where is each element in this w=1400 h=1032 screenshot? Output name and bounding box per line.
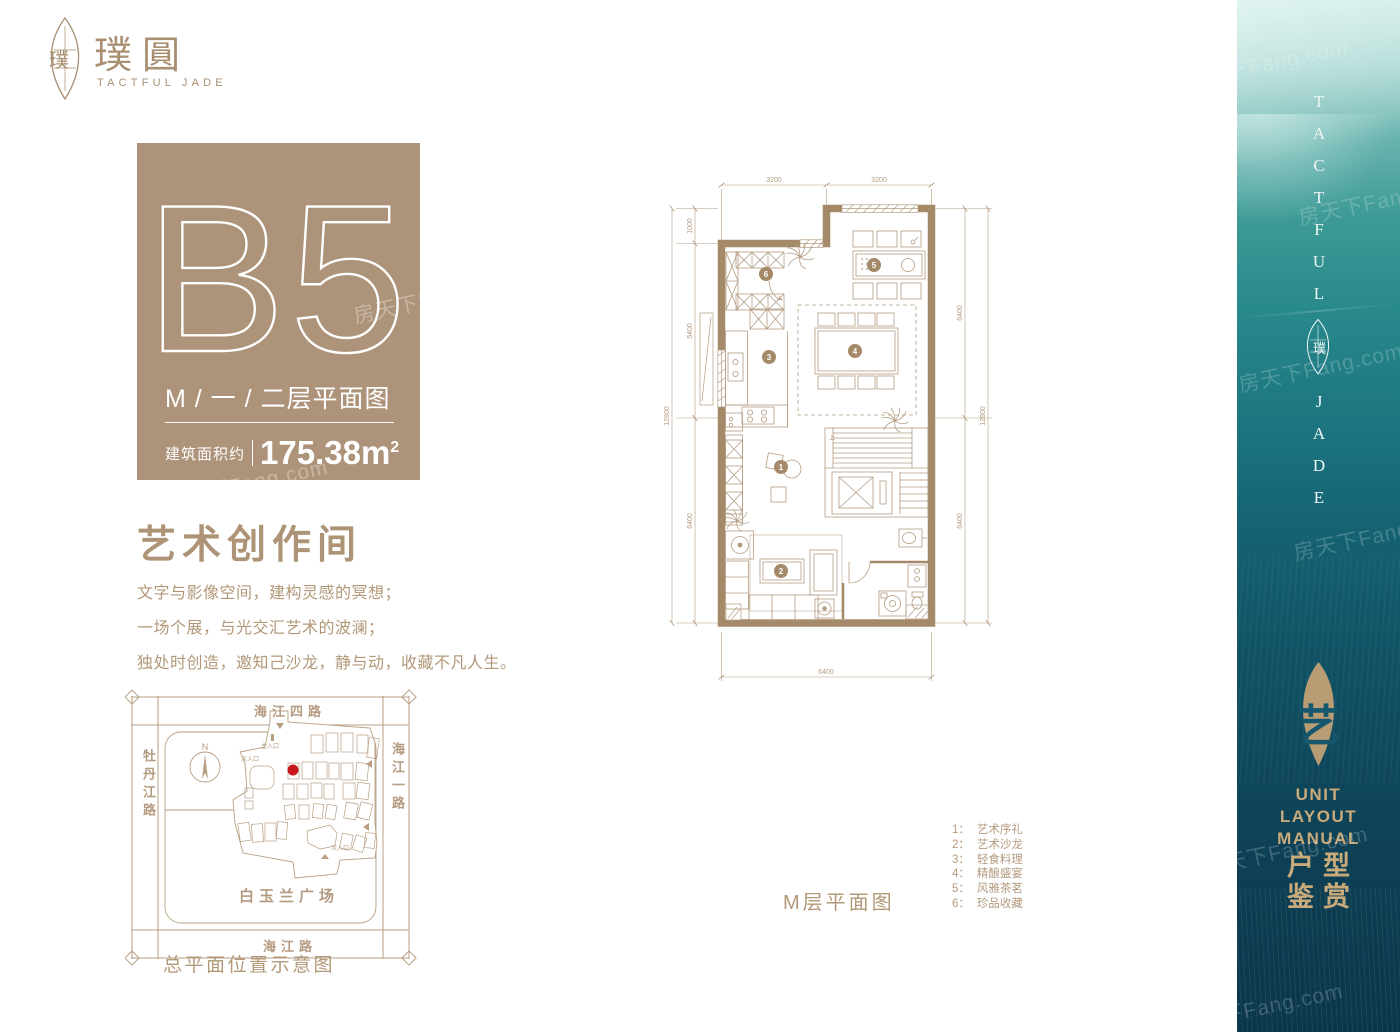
svg-text:6: 6 [764,270,769,279]
brochure-page: 璞 璞圓 TACTFUL JADE B5 M / 一 / 二层平面图 建筑面积约… [0,0,1400,1032]
vertical-brand-top: TACTFUL [1309,92,1329,316]
art-character: 艺 [1237,690,1400,754]
intro-line: 一场个展，与光交汇艺术的波澜； [137,611,517,646]
map-parcel-outline [233,711,377,878]
legend-item: 6：珍品收藏 [952,895,1023,910]
svg-text:3200: 3200 [871,177,887,184]
side-panel: TACTFUL 璞 JADE 艺 UNIT LAYOUT MANUAL 户型 鉴… [1237,0,1400,1032]
room-badge: 5 [867,258,881,272]
brand-leaf-glyph: 璞 [49,44,69,73]
area-row: 建筑面积约 175.38m2 [165,434,399,472]
svg-text:6400: 6400 [687,513,694,529]
legend-item: 1：艺术序礼 [952,822,1023,837]
entry-gallery [726,413,802,525]
dimension-labels: 3200 3200 1000 5400 6400 12800 6400 6400… [664,177,987,676]
legend-item: 2：艺术沙龙 [952,837,1023,852]
brand-name-en: TACTFUL JADE [97,77,227,89]
dining-area [798,305,916,415]
area-separator [252,440,253,466]
kitchen [726,309,788,427]
svg-text:12800: 12800 [980,406,987,426]
location-marker [288,765,299,776]
svg-text:2: 2 [779,567,784,576]
floor-plan-caption: M层平面图 [783,886,895,915]
entrance-label-secondary: 次入口 [241,754,259,763]
svg-text:5400: 5400 [687,323,694,339]
room-badge: 4 [848,344,862,358]
legend-item: 5：风雅茶茗 [952,881,1023,896]
stairs-elevator: 上 [825,428,928,517]
entrance-label-main: 主入口 [261,741,279,750]
watermark: 房天下Fang.com [1291,503,1400,567]
svg-text:6400: 6400 [818,669,834,676]
svg-text:6400: 6400 [957,305,964,321]
area-value: 175.38m2 [260,434,399,472]
room-legend: 1：艺术序礼 2：艺术沙龙 3：轻食料理 4：精酿盛宴 5：风雅茶茗 6：珍品收… [952,822,1023,910]
manual-title-cn: 户型 鉴赏 [1237,851,1400,913]
room-badges: 1 2 3 4 5 6 [759,258,881,578]
room-badge: 1 [774,460,788,474]
svg-text:1: 1 [779,463,784,472]
room-badge: 3 [762,350,776,364]
watermark: 房天下Fang.com [1237,31,1351,95]
road-label-top: 海江四路 [240,701,340,720]
unit-code: B5 [146,161,411,383]
plaza-label: 白玉兰广场 [229,885,349,906]
unit-code-graphic: B5 [137,151,420,383]
area-label: 建筑面积约 [165,443,245,464]
intro-line: 独处时创造，邀知己沙龙，静与动，收藏不凡人生。 [137,646,517,681]
intro-line: 文字与影像空间，建构灵感的冥想； [137,576,517,611]
svg-text:3200: 3200 [766,177,782,184]
card-divider [165,422,394,423]
site-map-caption: 总平面位置示意图 [163,950,335,977]
brand-name-cn: 璞圓 [94,24,190,79]
stair-up-label: 上 [829,434,835,442]
vertical-brand-bottom: JADE [1309,392,1329,520]
svg-text:12800: 12800 [664,406,671,426]
display-cabinets [726,252,784,310]
floor-label: M / 一 / 二层平面图 [165,379,391,415]
floor-plan-drawing: 上 [650,155,1010,710]
unit-card: B5 M / 一 / 二层平面图 建筑面积约 175.38m2 房天下Fang.… [137,143,420,480]
svg-text:1000: 1000 [687,218,694,234]
room-badge: 2 [774,564,788,578]
page-title: 艺术创作间 [137,514,362,570]
leaf-glyph: 璞 [1313,338,1326,357]
map-compass: N [190,742,220,782]
legend-item: 3：轻食料理 [952,851,1023,866]
svg-text:4: 4 [853,347,858,356]
road-label-left: 牡丹江路 [139,749,158,821]
entrance-label-secondary: 次入口 [331,843,349,852]
room-badge: 6 [759,267,773,281]
plant-icon [725,243,908,531]
manual-title: UNIT LAYOUT MANUAL [1237,784,1400,850]
svg-text:5: 5 [872,261,877,270]
svg-text:6400: 6400 [957,513,964,529]
svg-text:3: 3 [767,353,772,362]
legend-item: 4：精酿盛宴 [952,866,1023,881]
road-label-right: 海江一路 [388,742,407,814]
watermark: 房天下Fang.com [1237,975,1346,1032]
intro-text: 文字与影像空间，建构灵感的冥想； 一场个展，与光交汇艺术的波澜； 独处时创造，邀… [137,576,517,681]
compass-n: N [202,742,209,752]
tea-room [853,231,925,299]
